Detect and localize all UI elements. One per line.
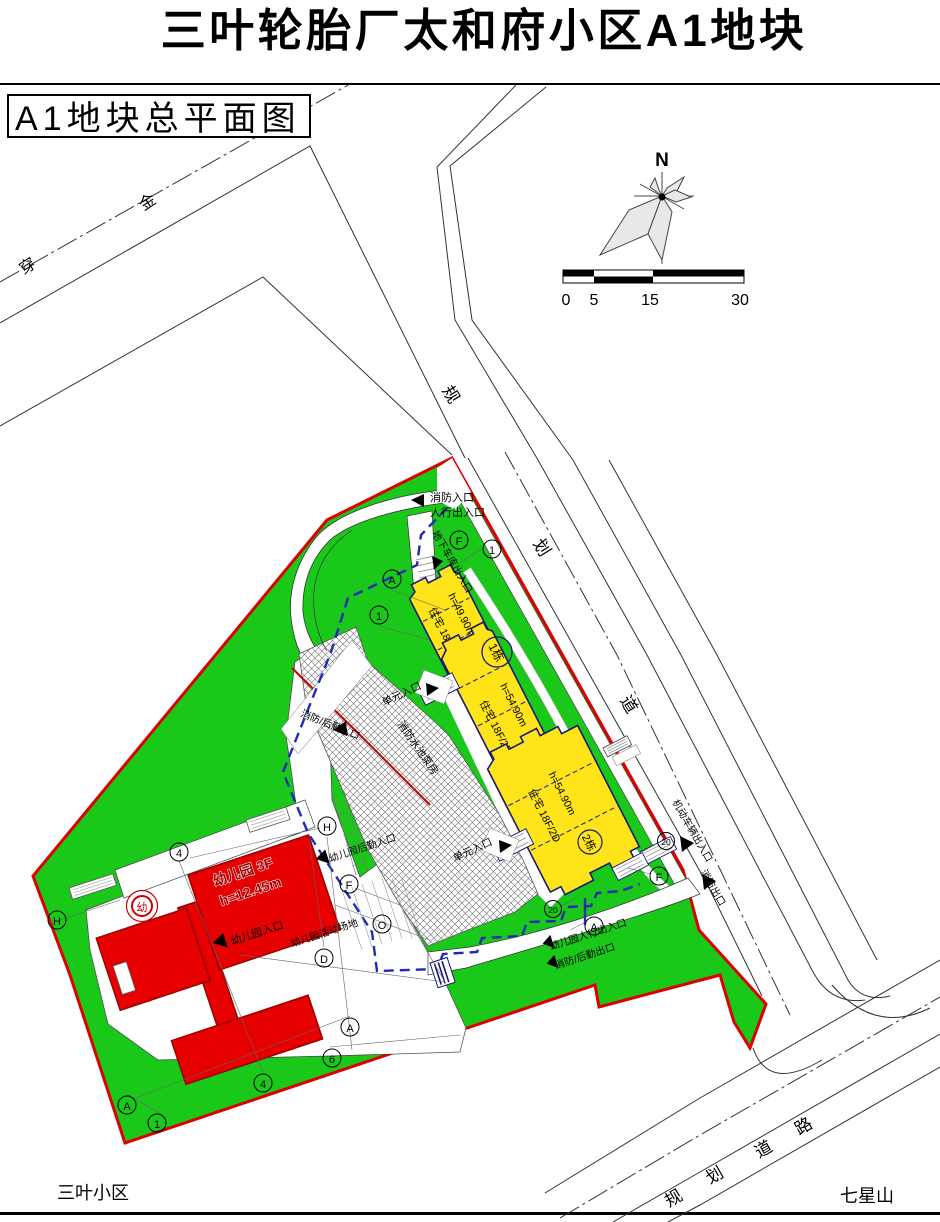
svg-text:三叶轮胎厂太和府小区A1地块: 三叶轮胎厂太和府小区A1地块 [161, 5, 808, 56]
svg-text:0: 0 [562, 292, 571, 309]
svg-text:幼: 幼 [137, 901, 148, 914]
svg-text:A: A [346, 1023, 354, 1035]
svg-text:5: 5 [590, 292, 599, 309]
svg-text:N: N [655, 150, 669, 171]
svg-text:F: F [346, 880, 353, 892]
svg-text:F: F [456, 536, 463, 548]
svg-text:三叶小区: 三叶小区 [57, 1183, 129, 1203]
svg-text:H: H [53, 916, 61, 928]
svg-text:1: 1 [376, 611, 382, 623]
svg-text:消防入口: 消防入口 [430, 490, 474, 504]
svg-text:D: D [320, 954, 328, 966]
svg-text:H: H [323, 822, 331, 834]
svg-text:4: 4 [260, 1079, 266, 1091]
svg-text:A1地块总平面图: A1地块总平面图 [15, 100, 301, 138]
svg-text:A: A [388, 575, 396, 587]
svg-text:6: 6 [329, 1054, 335, 1066]
svg-text:4: 4 [176, 848, 182, 860]
svg-text:O: O [378, 920, 387, 932]
svg-text:20: 20 [661, 837, 671, 847]
svg-text:A: A [590, 922, 598, 934]
svg-text:人行出入口: 人行出入口 [430, 505, 485, 519]
svg-text:1: 1 [154, 1119, 160, 1131]
svg-text:七星山: 七星山 [840, 1186, 894, 1206]
svg-text:1: 1 [489, 545, 495, 557]
svg-text:A: A [123, 1101, 131, 1113]
svg-text:30: 30 [731, 292, 749, 309]
svg-text:15: 15 [641, 292, 659, 309]
svg-text:F: F [656, 872, 663, 884]
svg-text:20: 20 [548, 905, 558, 915]
